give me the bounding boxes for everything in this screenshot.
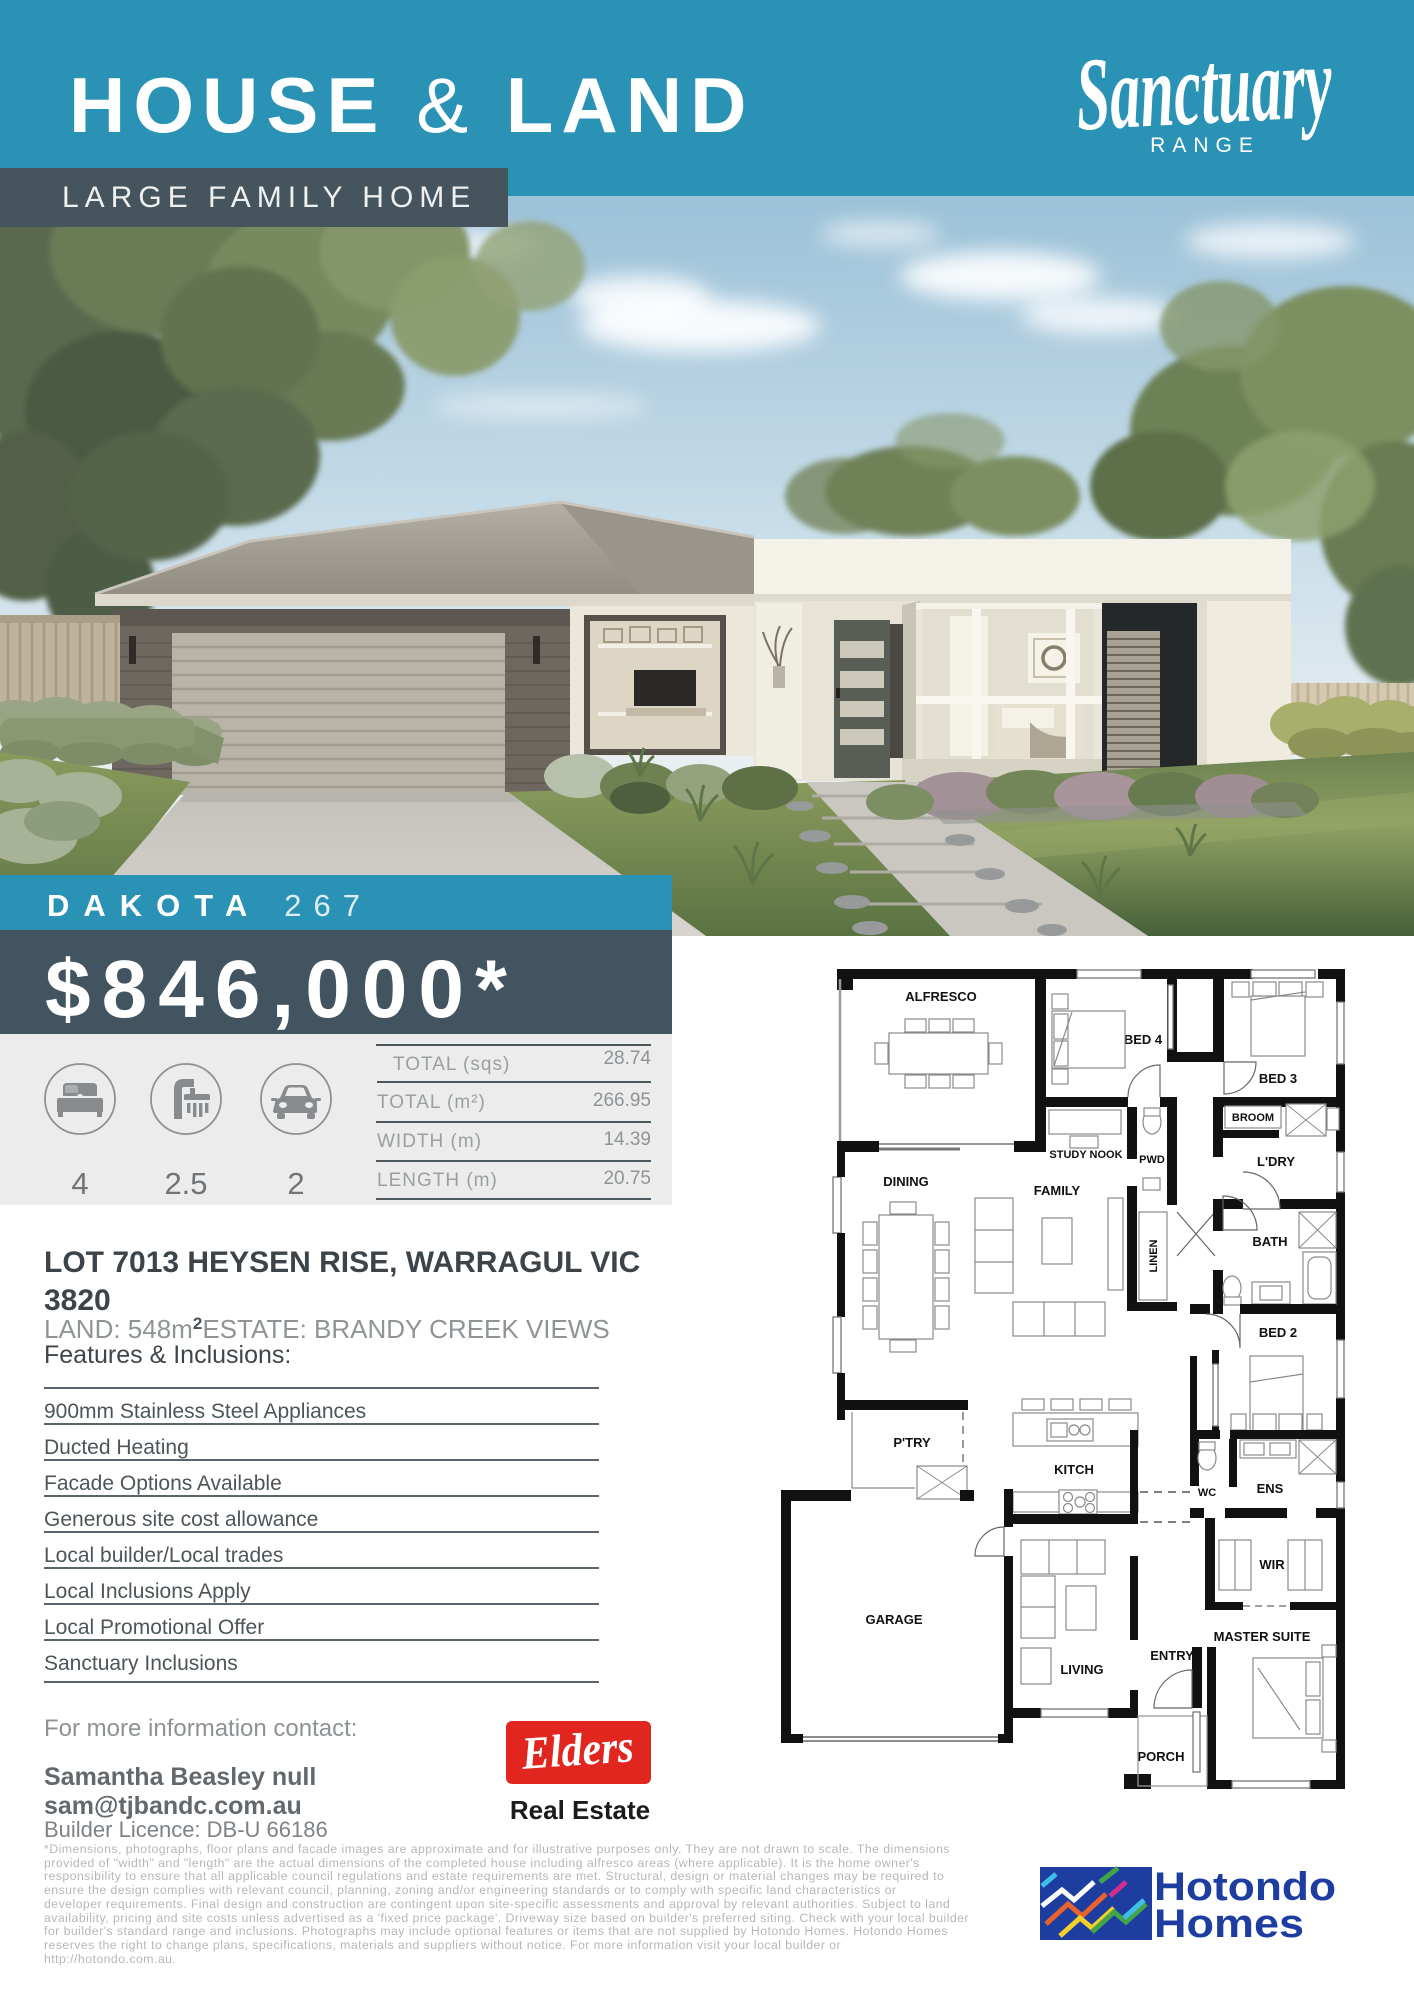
svg-text:ENTRY: ENTRY: [1150, 1648, 1194, 1663]
svg-text:PORCH: PORCH: [1138, 1749, 1185, 1764]
svg-text:Homes: Homes: [1154, 1902, 1304, 1946]
svg-text:PWD: PWD: [1139, 1154, 1165, 1166]
svg-text:BED 2: BED 2: [1259, 1325, 1297, 1340]
svg-text:STUDY NOOK: STUDY NOOK: [1049, 1149, 1122, 1161]
svg-text:ENS: ENS: [1257, 1481, 1284, 1496]
svg-text:KITCH: KITCH: [1054, 1462, 1094, 1477]
svg-text:DINING: DINING: [883, 1174, 929, 1189]
svg-text:MASTER SUITE: MASTER SUITE: [1214, 1629, 1311, 1644]
svg-text:GARAGE: GARAGE: [865, 1612, 922, 1627]
svg-text:BATH: BATH: [1252, 1234, 1287, 1249]
svg-text:BED 4: BED 4: [1124, 1032, 1163, 1047]
svg-text:LINEN: LINEN: [1148, 1239, 1160, 1272]
svg-text:WC: WC: [1198, 1487, 1216, 1499]
svg-text:ALFRESCO: ALFRESCO: [905, 989, 977, 1004]
svg-text:FAMILY: FAMILY: [1034, 1183, 1081, 1198]
svg-text:Elders: Elders: [519, 1721, 635, 1779]
svg-text:P'TRY: P'TRY: [893, 1435, 931, 1450]
svg-text:BROOM: BROOM: [1232, 1112, 1274, 1124]
svg-text:LIVING: LIVING: [1060, 1662, 1103, 1677]
svg-text:WIR: WIR: [1259, 1557, 1285, 1572]
svg-text:BED 3: BED 3: [1259, 1071, 1297, 1086]
svg-text:L'DRY: L'DRY: [1257, 1154, 1295, 1169]
svg-text:RANGE: RANGE: [1150, 134, 1260, 157]
